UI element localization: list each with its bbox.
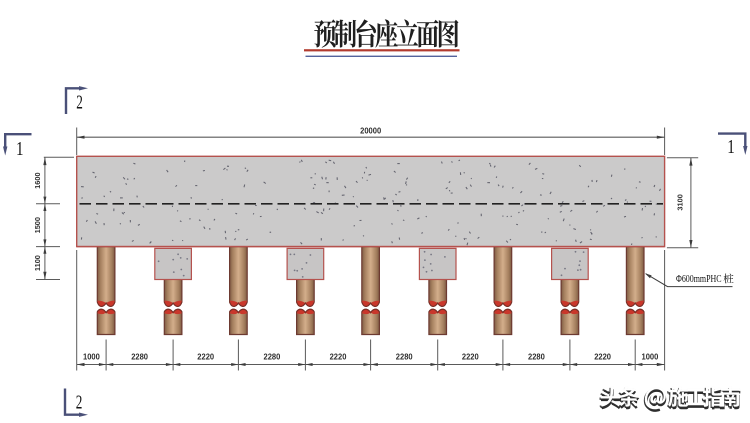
- svg-text:1600: 1600: [33, 172, 42, 188]
- svg-text:1500: 1500: [33, 217, 42, 233]
- svg-text:2220: 2220: [330, 352, 347, 362]
- svg-text:2: 2: [76, 391, 83, 413]
- svg-text:2280: 2280: [528, 352, 545, 362]
- svg-text:Φ600mmPHC: Φ600mmPHC: [676, 274, 722, 285]
- svg-text:1000: 1000: [83, 352, 100, 362]
- svg-text:2: 2: [76, 91, 83, 113]
- svg-text:1100: 1100: [33, 255, 42, 271]
- svg-text:2280: 2280: [396, 352, 413, 362]
- svg-text:2220: 2220: [462, 352, 479, 362]
- svg-text:20000: 20000: [360, 126, 381, 136]
- svg-text:1: 1: [16, 137, 23, 160]
- svg-text:2280: 2280: [131, 352, 148, 362]
- svg-text:1000: 1000: [641, 352, 658, 362]
- svg-text:2220: 2220: [197, 352, 214, 362]
- svg-text:1: 1: [727, 135, 734, 158]
- svg-text:2220: 2220: [594, 352, 611, 362]
- svg-text:3100: 3100: [676, 194, 685, 210]
- svg-text:2280: 2280: [263, 352, 280, 362]
